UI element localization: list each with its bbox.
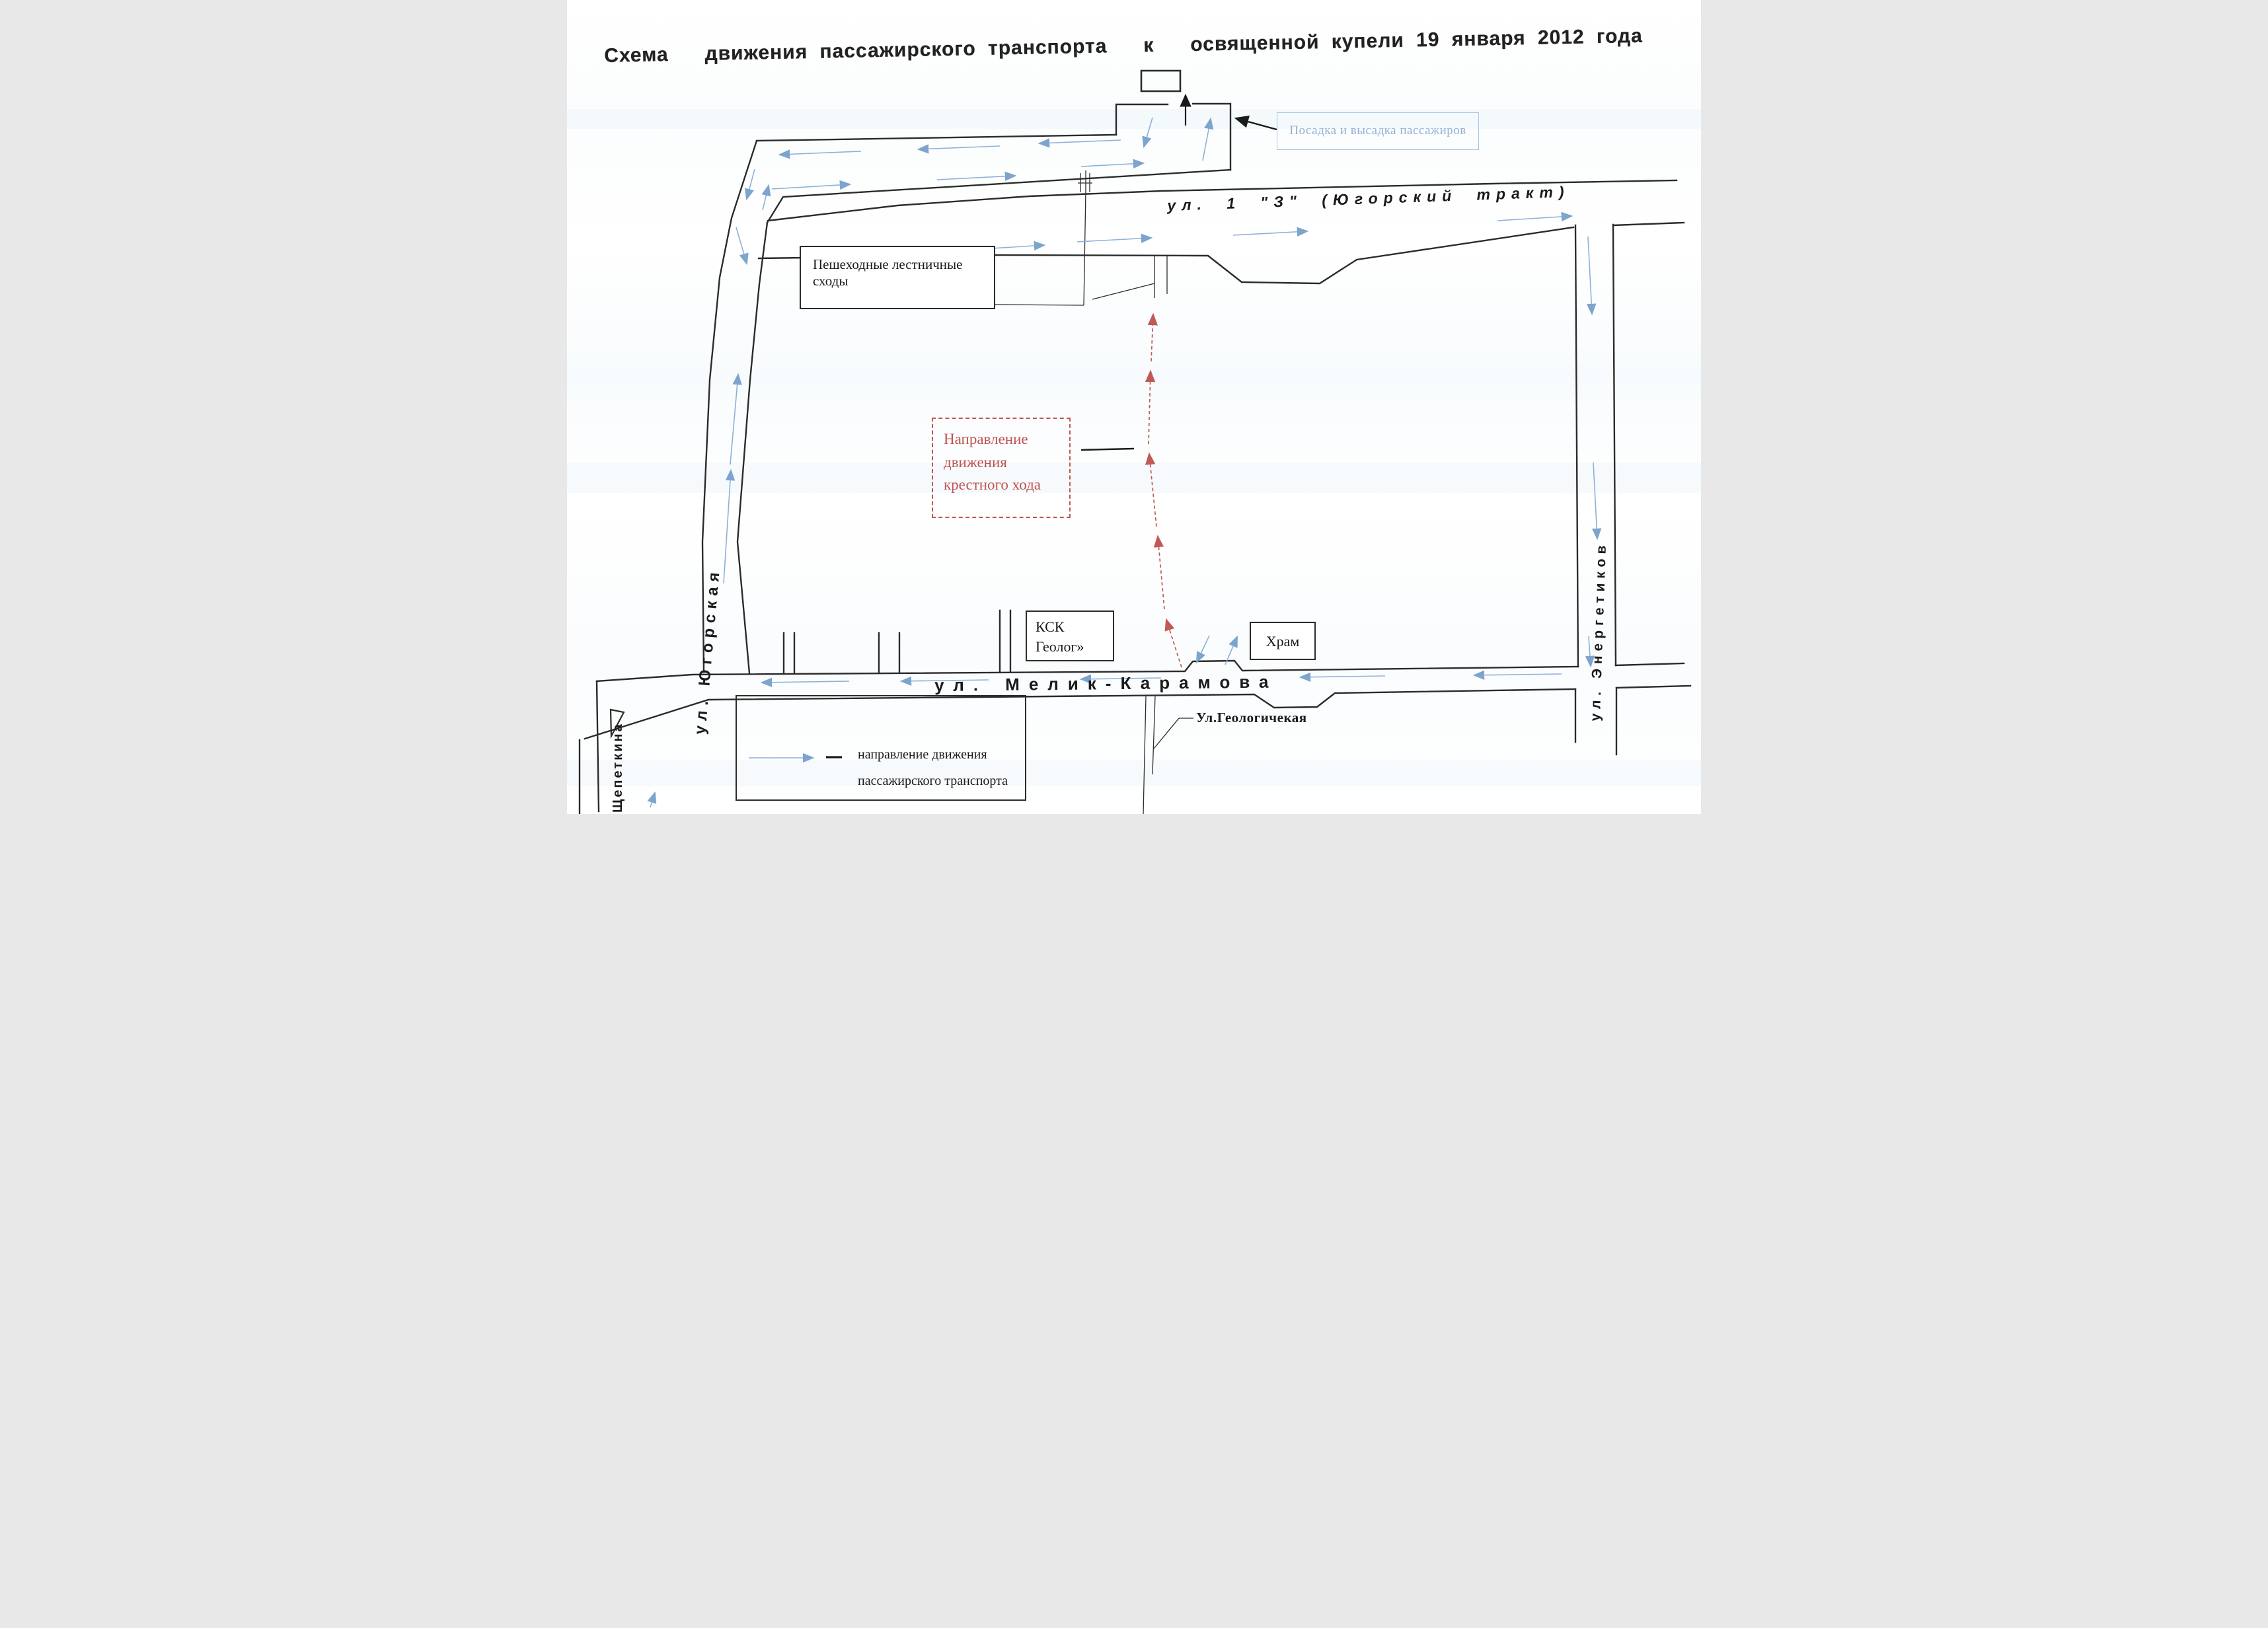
geologicheskaya-callout bbox=[1154, 718, 1193, 749]
procession-arrows bbox=[1149, 314, 1182, 667]
street-label-shchepetkina: ул. Щепеткина bbox=[611, 722, 624, 814]
legend-text-line2: пассажирского транспорта bbox=[858, 774, 1008, 788]
geologicheskaya-street-lines bbox=[1143, 696, 1155, 814]
font-building-box bbox=[1141, 71, 1180, 91]
street-label-geologicheskaya: Ул.Геологичекая bbox=[1196, 711, 1307, 725]
scanned-traffic-scheme: Схема движения пассажирского транспорта … bbox=[567, 0, 1701, 814]
boarding-label: Посадка и высадка пассажиров bbox=[1277, 124, 1478, 138]
crossing-line bbox=[1084, 170, 1086, 305]
boarding-box: Посадка и высадка пассажиров bbox=[1277, 112, 1479, 150]
ksk-geolog-label: КСК Геолог» bbox=[1036, 617, 1084, 656]
stairs-box-connector bbox=[995, 305, 1084, 305]
stairs-box-label: Пешеходные лестничные сходы bbox=[813, 256, 994, 289]
ugorsky-trakt-south-edge-east bbox=[1613, 223, 1684, 225]
road-top-south-edge bbox=[767, 170, 1230, 223]
melik-karamova-south-edge bbox=[585, 689, 1575, 739]
legend-text-line1: направление движения bbox=[858, 748, 987, 761]
road-dash-mid bbox=[1081, 449, 1134, 450]
arrow-boarding-callout bbox=[1236, 118, 1277, 129]
driveway-stubs bbox=[784, 610, 1010, 673]
bus-loop-edges bbox=[1116, 104, 1230, 170]
road-top-north-edge bbox=[757, 135, 1116, 141]
west-boundary-lines bbox=[580, 681, 599, 814]
street-label-melik-karamova: ул. Мелик-Карамова bbox=[934, 673, 1277, 694]
melik-karamova-north-edge-east bbox=[1616, 663, 1684, 665]
stairs-box: Пешеходные лестничные сходы bbox=[800, 246, 995, 309]
melik-karamova-south-edge-east bbox=[1616, 686, 1690, 688]
temple-box: Храм bbox=[1250, 622, 1316, 660]
stairs-marks-lower bbox=[1154, 256, 1167, 298]
procession-box: Направление движения крестного хода bbox=[932, 418, 1071, 518]
stairs-marks-upper bbox=[1078, 173, 1092, 192]
procession-box-label: Направление движения крестного хода bbox=[944, 428, 1041, 497]
ksk-geolog-box: КСК Геолог» bbox=[1026, 610, 1114, 661]
yugorskaya-east-edge bbox=[737, 223, 767, 673]
temple-label: Храм bbox=[1251, 633, 1314, 650]
stairs-slant-line bbox=[1092, 283, 1154, 299]
